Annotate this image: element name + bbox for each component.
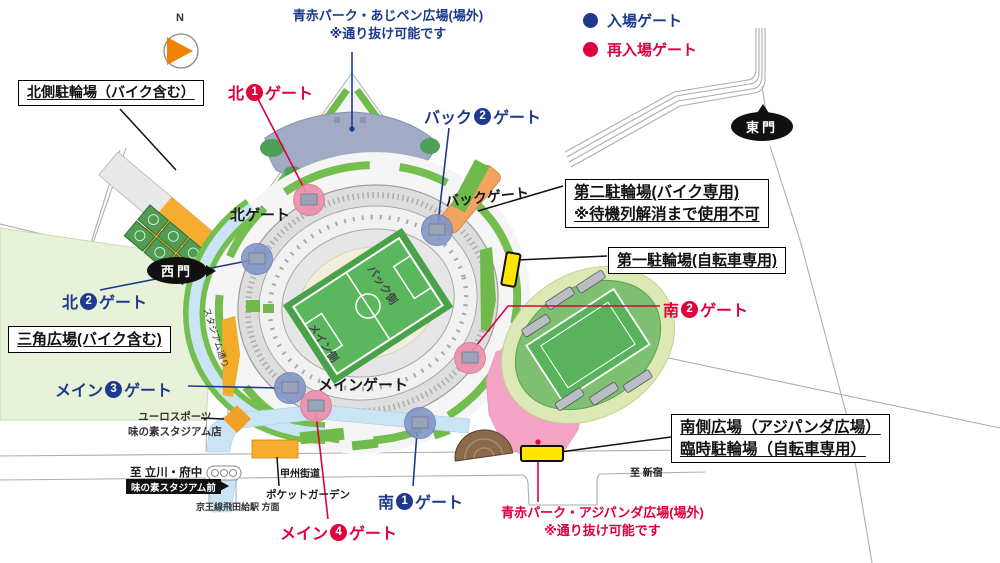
legend-entry-label: 入場ゲート bbox=[607, 10, 682, 31]
south-park-note-line1: 青赤パーク・アジパンダ広場(場外) bbox=[495, 504, 710, 522]
gate-north2-badge: 2 bbox=[80, 293, 97, 310]
to-shinjuku-label: 至 新宿 bbox=[630, 464, 663, 479]
gate-south1-badge: 1 bbox=[396, 493, 413, 510]
gate-north2-pre: 北 bbox=[62, 289, 78, 313]
north-bike-parking-text: 北側駐輪場（バイク含む） bbox=[27, 83, 195, 103]
main-gate-label: メインゲート bbox=[318, 374, 408, 395]
to-tachikawa-label: 至 立川・府中 bbox=[130, 464, 202, 480]
pocket-garden-label: ポケットガーデン bbox=[266, 487, 350, 502]
reentry-gate-dot-icon bbox=[583, 42, 598, 57]
gate-south1-pre: 南 bbox=[378, 489, 394, 513]
entry-gate-dot-icon bbox=[583, 13, 598, 28]
triangle-plaza-text: 三角広場(バイク含む) bbox=[17, 329, 162, 350]
gate-main3-badge: 3 bbox=[105, 381, 122, 398]
koshu-kaido-label: 甲州街道 bbox=[280, 465, 320, 480]
west-gate-tag-text: 西門 bbox=[161, 261, 193, 280]
bus-stop-tag-pointer bbox=[220, 481, 229, 491]
legend-reentry-label: 再入場ゲート bbox=[607, 39, 697, 60]
south-park-line-dot bbox=[535, 439, 540, 444]
north-park-line-dot bbox=[349, 126, 354, 131]
legend-reentry-gate: 再入場ゲート bbox=[583, 39, 697, 60]
south-plaza-line2: 臨時駐輪場（自転車専用） bbox=[680, 439, 881, 461]
euro-sports-label: ユーロスポーツ 味の素スタジアム店 bbox=[128, 409, 222, 439]
compass-icon bbox=[164, 34, 198, 68]
east-gate-tag: 東門 bbox=[731, 112, 793, 141]
gate-main4-post: ゲート bbox=[349, 520, 397, 544]
north-bike-parking-box: 北側駐輪場（バイク含む） bbox=[18, 80, 204, 106]
gate-main3-post: ゲート bbox=[124, 377, 172, 401]
second-bike-parking-box: 第二駐輪場(バイク専用) ※待機列解消まで使用不可 bbox=[565, 179, 769, 228]
gate-main4-badge: 4 bbox=[330, 524, 347, 541]
gate-south2-post: ゲート bbox=[700, 297, 748, 321]
legend-entry-gate: 入場ゲート bbox=[583, 10, 697, 31]
second-bike-parking-line1: 第二駐輪場(バイク専用) bbox=[574, 182, 760, 204]
gate-label-main3: メイン3ゲート bbox=[55, 377, 172, 401]
gate-main4-pre: メイン bbox=[280, 520, 328, 544]
gate-label-main4: メイン4ゲート bbox=[280, 520, 397, 544]
gate-back2-pre: バック bbox=[424, 104, 472, 128]
triangle-plaza-box: 三角広場(バイク含む) bbox=[8, 326, 171, 353]
euro-sports-line2: 味の素スタジアム店 bbox=[128, 424, 222, 439]
stadium-access-map: N 入場ゲート 再入場ゲート 青赤パーク・あじペン広場(場外) ※通り抜け可能で… bbox=[0, 0, 1000, 563]
second-bike-parking-line2: ※待機列解消まで使用不可 bbox=[574, 204, 760, 226]
gate-south2-pre: 南 bbox=[663, 297, 679, 321]
gate-south2-badge: 2 bbox=[681, 301, 698, 318]
gate-north1-pre: 北 bbox=[228, 80, 244, 104]
south-plaza-line1: 南側広場（アジパンダ広場） bbox=[680, 417, 881, 439]
temp-bike-parking-marker bbox=[521, 446, 563, 461]
bus-stop-tag: 味の素スタジアム前 bbox=[126, 479, 221, 494]
north-park-note: 青赤パーク・あじペン広場(場外) ※通り抜け可能です bbox=[268, 7, 508, 42]
north-park-note-line2: ※通り抜け可能です bbox=[268, 25, 508, 43]
south-park-note: 青赤パーク・アジパンダ広場(場外) ※通り抜け可能です bbox=[495, 504, 710, 539]
legend: 入場ゲート 再入場ゲート bbox=[583, 10, 697, 68]
pocket-garden-building bbox=[252, 440, 298, 458]
gate-south1-post: ゲート bbox=[415, 489, 463, 513]
north-gate-label: 北ゲート bbox=[230, 204, 290, 225]
west-gate-tag: 西門 bbox=[147, 257, 207, 284]
bus-stop-tag-text: 味の素スタジアム前 bbox=[131, 480, 216, 494]
euro-sports-line1: ユーロスポーツ bbox=[128, 409, 222, 424]
gate-north2-post: ゲート bbox=[99, 289, 147, 313]
bus-stop-symbol bbox=[207, 466, 241, 480]
east-gate-tag-text: 東門 bbox=[746, 117, 778, 136]
gate-label-north1: 北1ゲート bbox=[228, 80, 313, 104]
gate-back2-post: ゲート bbox=[493, 104, 541, 128]
south-plaza-box: 南側広場（アジパンダ広場） 臨時駐輪場（自転車専用） bbox=[671, 414, 890, 463]
first-bike-parking-text: 第一駐輪場(自転車専用) bbox=[617, 250, 777, 271]
gate-back2-badge: 2 bbox=[474, 108, 491, 125]
gate-north1-badge: 1 bbox=[246, 84, 263, 101]
west-gate-tag-pointer bbox=[206, 265, 216, 277]
compass-north-label: N bbox=[176, 12, 184, 24]
gate-main3-pre: メイン bbox=[55, 377, 103, 401]
gate-label-back2: バック2ゲート bbox=[424, 104, 541, 128]
north-park-note-line1: 青赤パーク・あじペン広場(場外) bbox=[268, 7, 508, 25]
first-bike-parking-box: 第一駐輪場(自転車専用) bbox=[608, 247, 786, 274]
gate-label-north2: 北2ゲート bbox=[62, 289, 147, 313]
south-park-note-line2: ※通り抜け可能です bbox=[495, 522, 710, 540]
gate-label-south1: 南1ゲート bbox=[378, 489, 463, 513]
east-gate-tag-pointer bbox=[757, 104, 769, 113]
gate-label-south2: 南2ゲート bbox=[663, 297, 748, 321]
gate-north1-post: ゲート bbox=[265, 80, 313, 104]
